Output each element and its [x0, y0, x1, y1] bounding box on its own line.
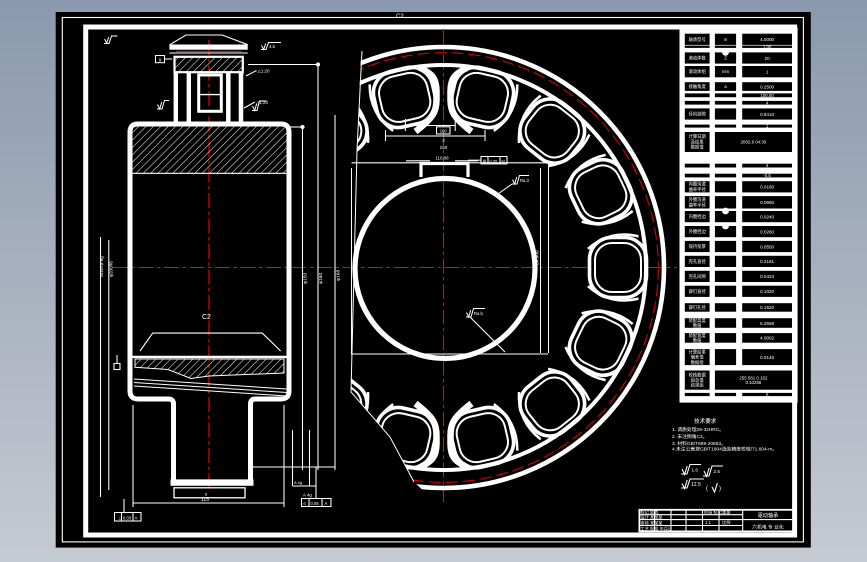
svg-text:Ra.3: Ra.3: [520, 178, 530, 183]
svg-text:兜孔直径: 兜孔直径: [689, 258, 707, 265]
svg-text:2: 2: [442, 138, 445, 143]
svg-text:9: 9: [159, 57, 162, 62]
svg-text:⊙: ⊙: [303, 501, 307, 506]
svg-text:铆钉直径: 铆钉直径: [689, 288, 707, 295]
svg-text:110.08: 110.08: [435, 156, 449, 161]
svg-text:1. 调质处理28-32HRC。: 1. 调质处理28-32HRC。: [672, 426, 724, 433]
svg-text:100.00: 100.00: [760, 93, 774, 98]
svg-text:0.0423: 0.0423: [760, 274, 774, 279]
svg-text:数据组: 数据组: [691, 359, 705, 366]
svg-text:0.1020: 0.1020: [760, 289, 774, 294]
svg-text:六机电 专 业化: 六机电 专 业化: [752, 523, 784, 530]
svg-text:内圈挡边: 内圈挡边: [689, 213, 707, 220]
svg-text:3. 材料GB/T699-20653。: 3. 材料GB/T699-20653。: [672, 440, 726, 447]
svg-text:M: M: [502, 158, 505, 163]
svg-text:0.2500: 0.2500: [760, 84, 774, 89]
svg-text:△1:20: △1:20: [258, 69, 270, 74]
svg-text:4.未注公差按GB/T1804选装精度校核/71.604-m: 4.未注公差按GB/T1804选装精度校核/71.604-m。: [672, 446, 777, 453]
svg-text:1:1: 1:1: [705, 520, 711, 525]
svg-text:曲率半径: 曲率半径: [689, 186, 707, 193]
svg-text:技术要求: 技术要求: [694, 417, 717, 425]
svg-text:φ168: φ168: [336, 270, 342, 281]
svg-text:(: (: [706, 486, 708, 492]
svg-text:接触角度: 接触角度: [689, 83, 707, 90]
svg-text:驱动轴承: 驱动轴承: [758, 511, 780, 519]
svg-text:M16×8-6g: M16×8-6g: [99, 256, 104, 277]
svg-text:20: 20: [765, 56, 771, 61]
svg-text:1.6: 1.6: [692, 468, 699, 473]
svg-text:⊕: ⊕: [483, 159, 487, 164]
svg-text:比例: 比例: [722, 519, 730, 526]
svg-text:0.0240: 0.0240: [760, 214, 774, 219]
svg-text:φ200/f6: φ200/f6: [109, 261, 114, 277]
svg-text:X: X: [766, 392, 769, 397]
svg-text:0.05: 0.05: [490, 158, 499, 163]
svg-text:△1:20: △1:20: [256, 100, 268, 105]
svg-text:0.2161: 0.2161: [760, 259, 774, 264]
svg-text:0.03: 0.03: [123, 516, 132, 521]
svg-text:1: 1: [766, 70, 769, 75]
svg-text:0.05: 0.05: [311, 501, 320, 506]
svg-text:曲率半径: 曲率半径: [689, 201, 707, 208]
svg-text:4.0000: 4.0000: [760, 37, 774, 42]
svg-text:工艺 批准 年月日: 工艺 批准 年月日: [641, 525, 673, 532]
svg-text:径向游隙: 径向游隙: [689, 111, 707, 118]
svg-text:0.1520: 0.1520: [760, 305, 774, 310]
svg-text:结果组: 结果组: [691, 382, 705, 389]
svg-text:24.909: 24.909: [535, 250, 541, 265]
svg-text:5.2558: 5.2558: [760, 321, 774, 326]
svg-text:C2: C2: [396, 14, 404, 20]
svg-text:数据值: 数据值: [691, 144, 705, 151]
svg-text:数值: 数值: [693, 337, 702, 344]
svg-text:A: A: [135, 516, 138, 521]
svg-text:0.0260: 0.0260: [760, 229, 774, 234]
svg-text:φ150: φ150: [303, 273, 309, 284]
svg-text:C2: C2: [202, 314, 211, 321]
svg-text:2002.6 04:30: 2002.6 04:30: [741, 140, 767, 145]
svg-text:2. 未注倒角C2。: 2. 未注倒角C2。: [672, 433, 707, 440]
svg-text:0.8410: 0.8410: [760, 112, 774, 117]
svg-text:A: A: [325, 501, 328, 506]
svg-text:115: 115: [201, 497, 209, 503]
svg-text:阶段 标记: 阶段 标记: [704, 509, 723, 516]
svg-text:滚动体数: 滚动体数: [689, 55, 707, 62]
svg-text:0.0660: 0.0660: [760, 200, 774, 205]
svg-text:-0.5: -0.5: [763, 173, 771, 178]
svg-text:150: 150: [440, 145, 448, 150]
svg-text:100: 100: [440, 129, 448, 134]
svg-text:0.0550: 0.0550: [760, 244, 774, 249]
svg-text:重量: 重量: [722, 509, 730, 516]
svg-text:A 4g: A 4g: [294, 480, 302, 485]
svg-text:0.0145: 0.0145: [760, 355, 774, 360]
svg-text:A 4g: A 4g: [303, 493, 312, 498]
svg-text:Z: Z: [724, 56, 727, 61]
svg-text:4.b: 4.b: [269, 44, 276, 49]
svg-text:mm: mm: [722, 69, 729, 74]
svg-text:): ): [719, 486, 721, 492]
svg-text:轴承型号: 轴承型号: [689, 36, 706, 43]
svg-text:12.5: 12.5: [691, 482, 701, 488]
svg-text:4.0002: 4.0002: [760, 336, 774, 341]
svg-text:Ra.b: Ra.b: [474, 311, 484, 316]
svg-text:保持架厚: 保持架厚: [689, 243, 707, 250]
svg-text:兜孔间隙: 兜孔间隙: [689, 273, 707, 280]
svg-text:铆钉孔径: 铆钉孔径: [689, 304, 707, 311]
svg-text:数值: 数值: [693, 322, 702, 329]
svg-text:1.00: 1.00: [763, 44, 772, 49]
svg-text:0.10258: 0.10258: [745, 380, 761, 385]
svg-text:φ160: φ160: [318, 273, 324, 284]
svg-text:⊥: ⊥: [118, 516, 122, 521]
svg-text:m: m: [724, 37, 728, 42]
svg-text:2.5: 2.5: [714, 469, 721, 474]
svg-text:外圈挡边: 外圈挡边: [689, 228, 707, 235]
svg-text:滚动体组: 滚动体组: [689, 68, 707, 75]
svg-text:0.0160: 0.0160: [760, 185, 774, 190]
